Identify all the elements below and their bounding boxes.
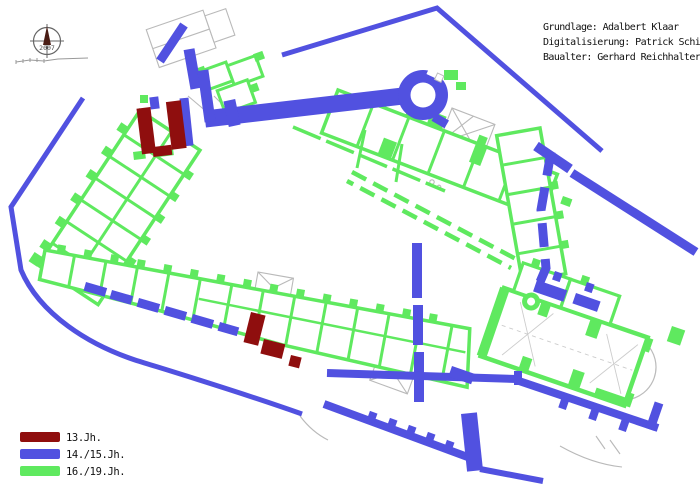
legend-swatch-14-15jh — [20, 449, 60, 459]
terrain-line — [300, 416, 328, 440]
compass-year: 2007 — [39, 44, 55, 52]
south-gate-tower-13jh — [288, 355, 301, 368]
church — [476, 251, 678, 413]
floor-plan-page: 2007 Grundlage: Adalbert Klaar Digitalis… — [0, 0, 700, 486]
round-tower-interior — [411, 83, 436, 108]
attribution-line-2: Digitalisierung: Patrick Schicht — [543, 37, 700, 48]
legend: 13.Jh. 14./15.Jh. 16./19.Jh. — [20, 432, 125, 478]
legend-swatch-16-19jh — [20, 466, 60, 476]
legend-item-16-19jh: 16./19.Jh. — [20, 466, 125, 478]
zwinger-wall — [327, 373, 517, 379]
attribution-text: Grundlage: Adalbert Klaar Digitalisierun… — [543, 22, 700, 63]
legend-swatch-13jh — [20, 432, 60, 442]
north-arrow: 2007 — [30, 24, 64, 58]
legend-item-13jh: 13.Jh. — [20, 432, 102, 444]
legend-label-13jh: 13.Jh. — [66, 432, 102, 444]
attribution-line-1: Grundlage: Adalbert Klaar — [543, 22, 679, 33]
attribution-line-3: Baualter: Gerhard Reichhalter — [543, 52, 700, 63]
southeast-wall — [572, 173, 696, 252]
scale-bar — [16, 58, 88, 64]
site-plan-drawing: 2007 Grundlage: Adalbert Klaar Digitalis… — [0, 0, 700, 486]
hatch-marks — [596, 436, 620, 454]
legend-item-14-15jh: 14./15.Jh. — [20, 449, 125, 461]
legend-label-16-19jh: 16./19.Jh. — [66, 466, 125, 478]
terrain-line — [560, 446, 622, 467]
legend-label-14-15jh: 14./15.Jh. — [66, 449, 125, 461]
